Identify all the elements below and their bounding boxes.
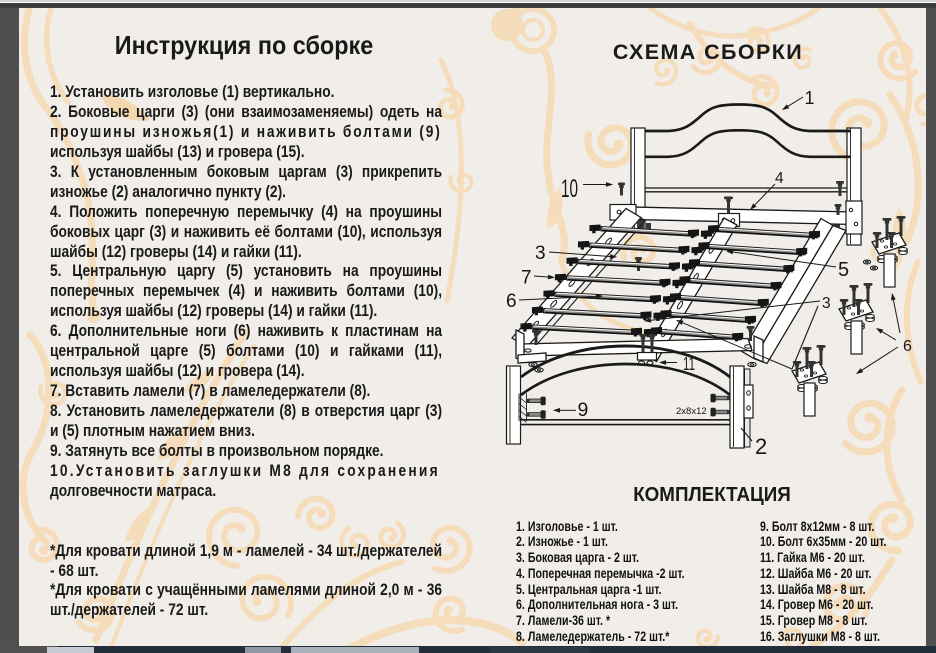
svg-text:3: 3 xyxy=(535,243,546,264)
svg-text:4: 4 xyxy=(775,170,784,187)
svg-text:11: 11 xyxy=(683,354,695,374)
svg-text:9: 9 xyxy=(578,399,589,421)
svg-text:5: 5 xyxy=(838,259,849,281)
svg-text:2х8х12: 2х8х12 xyxy=(676,406,707,417)
svg-text:2: 2 xyxy=(755,434,767,459)
svg-text:6: 6 xyxy=(903,338,912,355)
svg-text:10: 10 xyxy=(561,175,578,203)
svg-text:6: 6 xyxy=(506,291,517,312)
svg-text:3: 3 xyxy=(822,295,831,312)
svg-text:1: 1 xyxy=(805,88,815,108)
svg-text:7: 7 xyxy=(521,268,532,289)
